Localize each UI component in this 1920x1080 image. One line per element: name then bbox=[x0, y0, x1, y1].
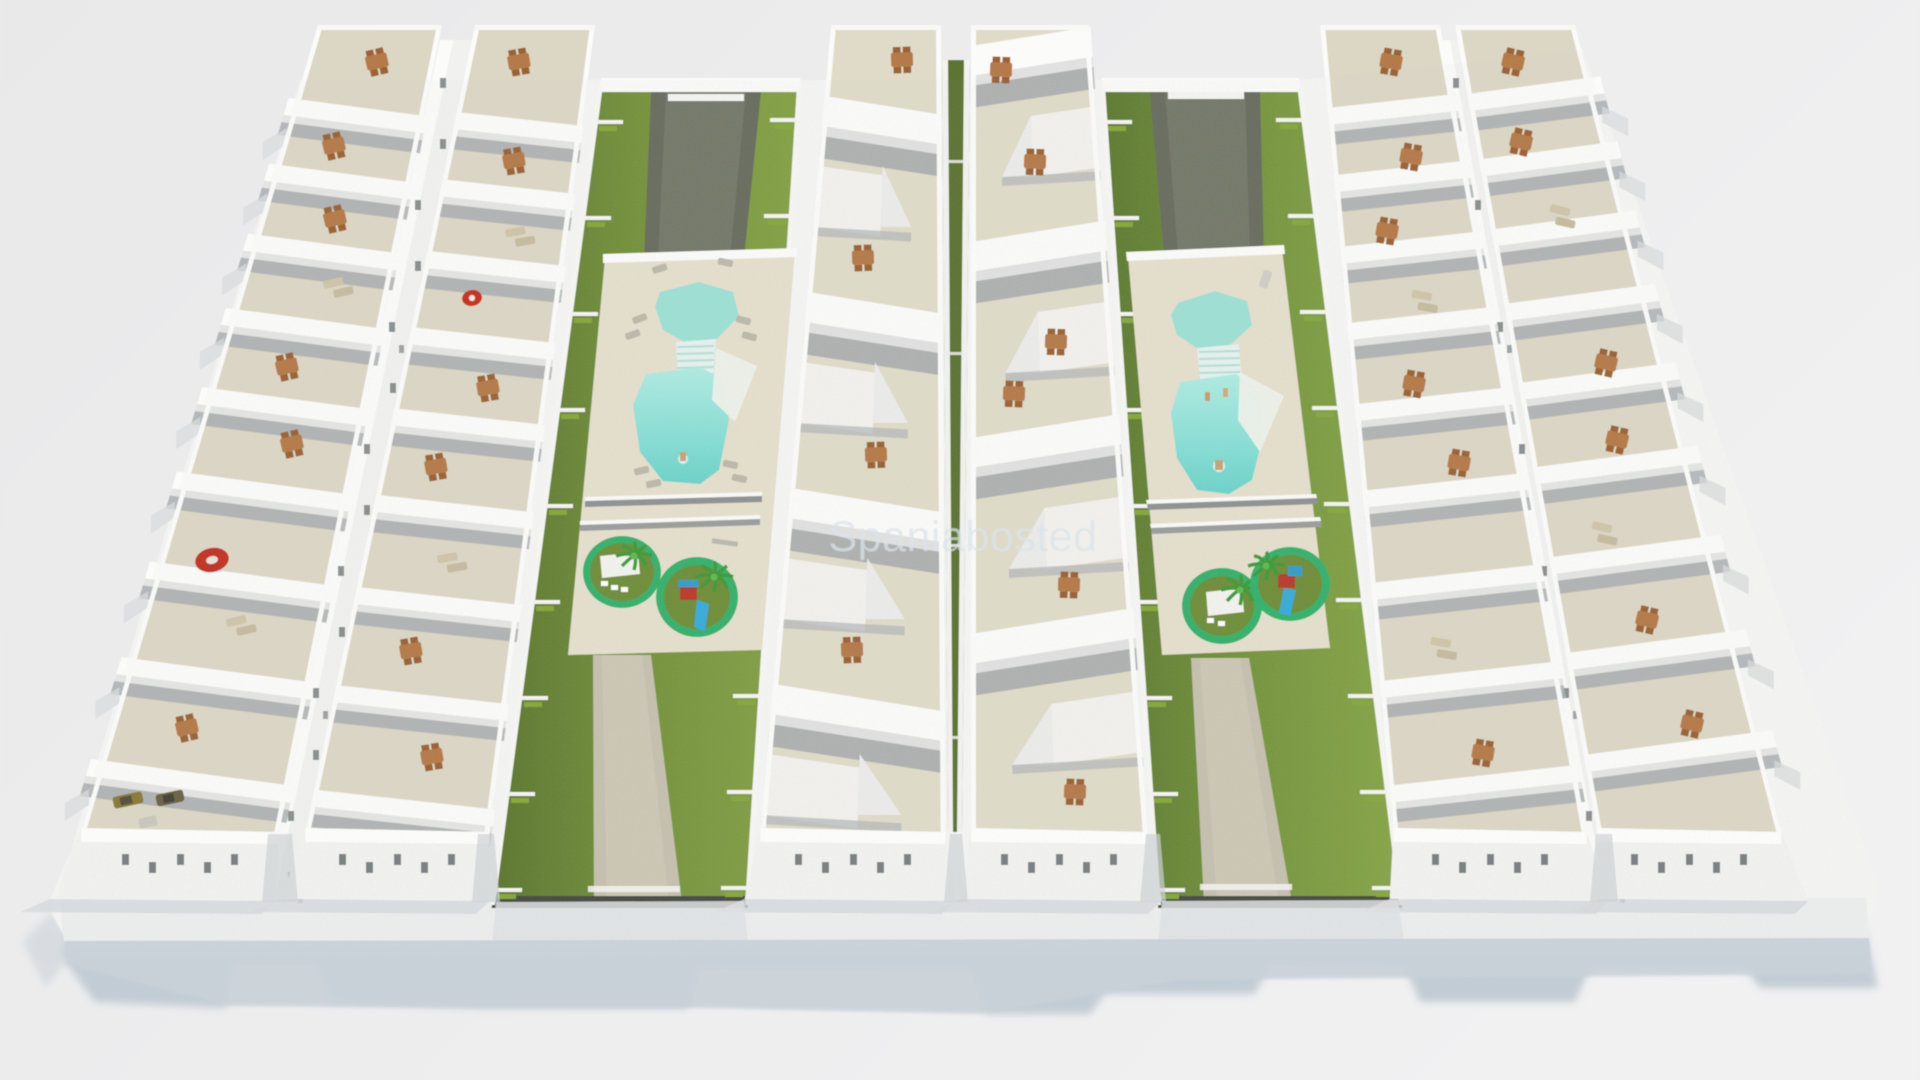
svg-text:Spaniabosted: Spaniabosted bbox=[829, 513, 1098, 561]
